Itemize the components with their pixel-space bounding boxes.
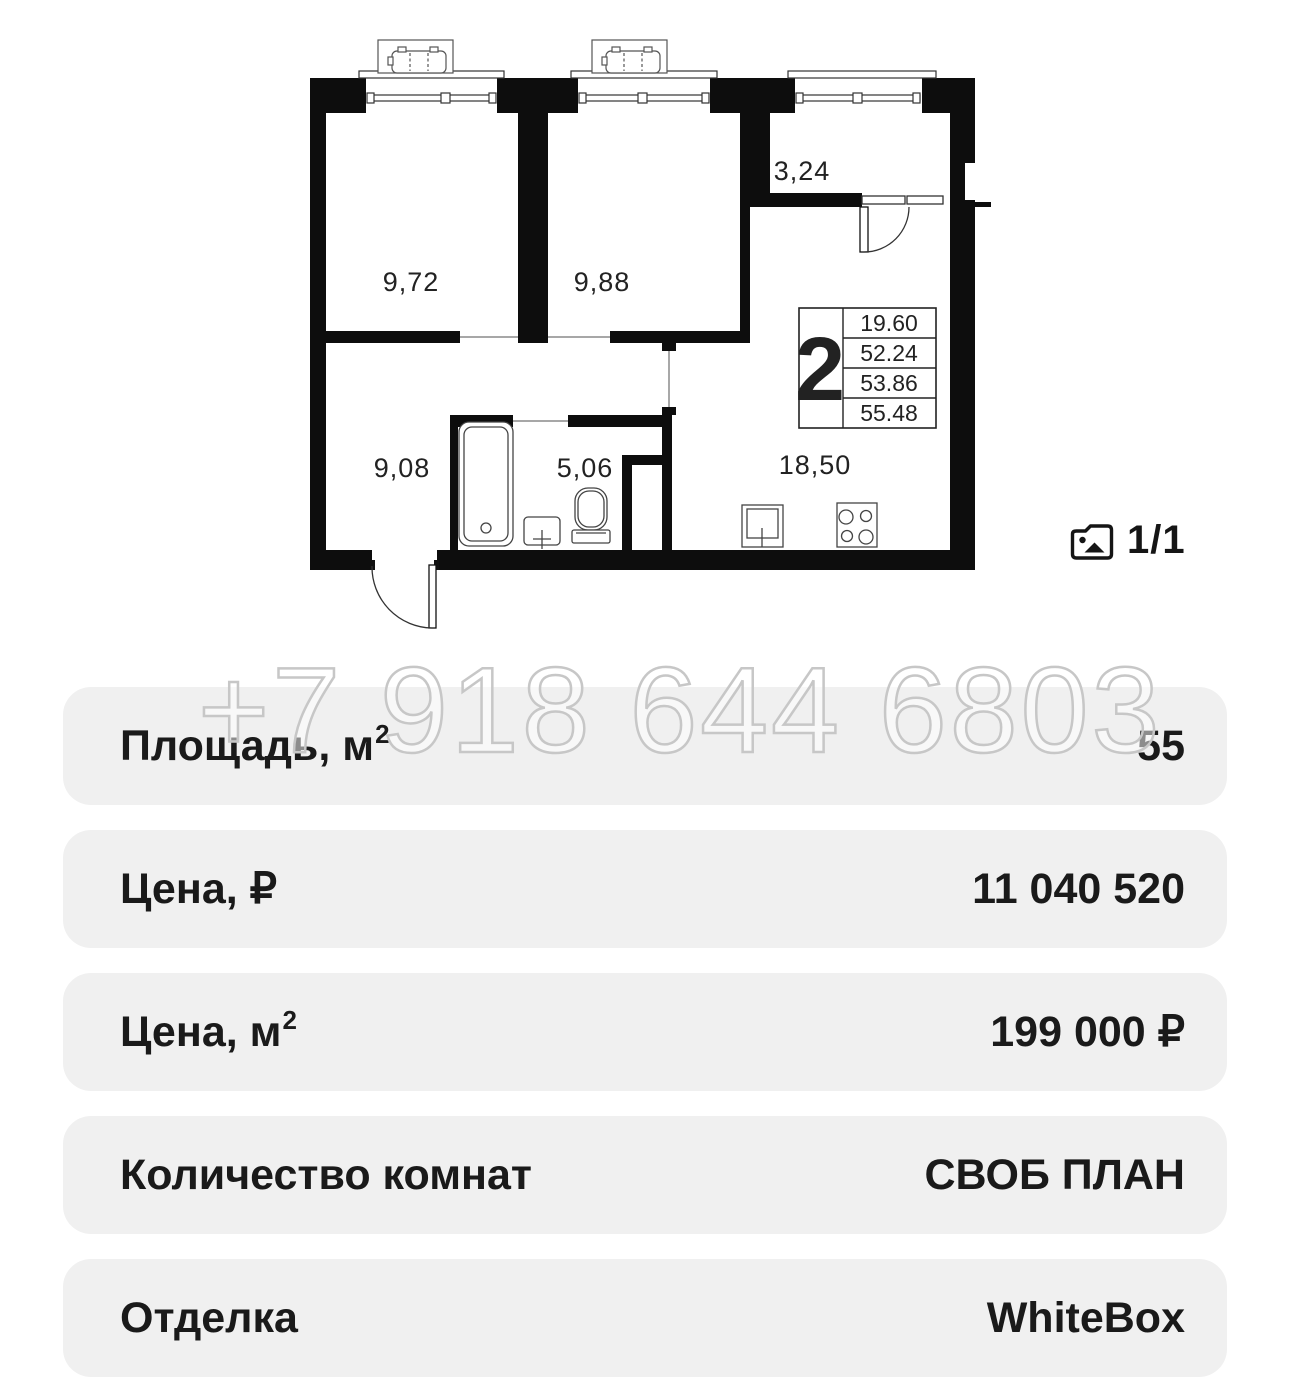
row-finish-label: Отделка [120, 1259, 298, 1377]
row-rooms-count-label: Количество комнат [120, 1116, 532, 1234]
row-rooms-count: Количество комнат СВОБ ПЛАН [63, 1116, 1227, 1234]
row-price: Цена, ₽ 11 040 520 [63, 830, 1227, 948]
entrance-door [370, 560, 439, 628]
row-finish-value: WhiteBox [987, 1259, 1185, 1377]
ac-unit-left-icon [378, 40, 453, 73]
legend-area-2: 52.24 [860, 340, 918, 366]
kitchen-sink-icon [742, 505, 783, 547]
phone-watermark: +7 918 644 6803 [198, 640, 1162, 780]
row-price-per-m2-value: 199 000 ₽ [990, 973, 1185, 1091]
row-price-per-m2-label: Цена, м2 [120, 973, 296, 1091]
interior-door [860, 196, 943, 252]
row-price-per-m2: Цена, м2 199 000 ₽ [63, 973, 1227, 1091]
legend-area-3: 53.86 [860, 370, 918, 396]
kitchen-area-label: 18,50 [779, 450, 852, 480]
opening-lines [460, 337, 669, 421]
legend-rooms-count: 2 [795, 320, 845, 420]
row-rooms-count-value: СВОБ ПЛАН [924, 1116, 1185, 1234]
room-2-area-label: 9,88 [574, 267, 631, 297]
legend-area-1: 19.60 [860, 310, 918, 336]
photo-gallery-counter[interactable]: 1/1 [1070, 518, 1186, 563]
ac-unit-middle-icon [592, 40, 667, 73]
balcony-area-label: 3,24 [774, 156, 831, 186]
bathtub-icon [459, 422, 513, 546]
bath-sink-icon [524, 517, 560, 549]
room-1-area-label: 9,72 [383, 267, 440, 297]
stove-icon [837, 503, 877, 547]
hallway-area-label: 9,08 [374, 453, 431, 483]
legend-box: 2 19.60 52.24 53.86 55.48 [795, 308, 936, 428]
window-middle [571, 71, 717, 113]
photo-counter-label: 1/1 [1127, 518, 1186, 563]
bathroom-area-label: 5,06 [557, 453, 614, 483]
window-left [359, 71, 504, 113]
row-price-label: Цена, ₽ [120, 830, 277, 948]
legend-area-4: 55.48 [860, 400, 918, 426]
photo-folder-icon [1070, 521, 1114, 561]
row-price-value: 11 040 520 [972, 830, 1185, 948]
row-finish: Отделка WhiteBox [63, 1259, 1227, 1377]
window-right [788, 71, 936, 113]
toilet-icon [572, 488, 610, 543]
